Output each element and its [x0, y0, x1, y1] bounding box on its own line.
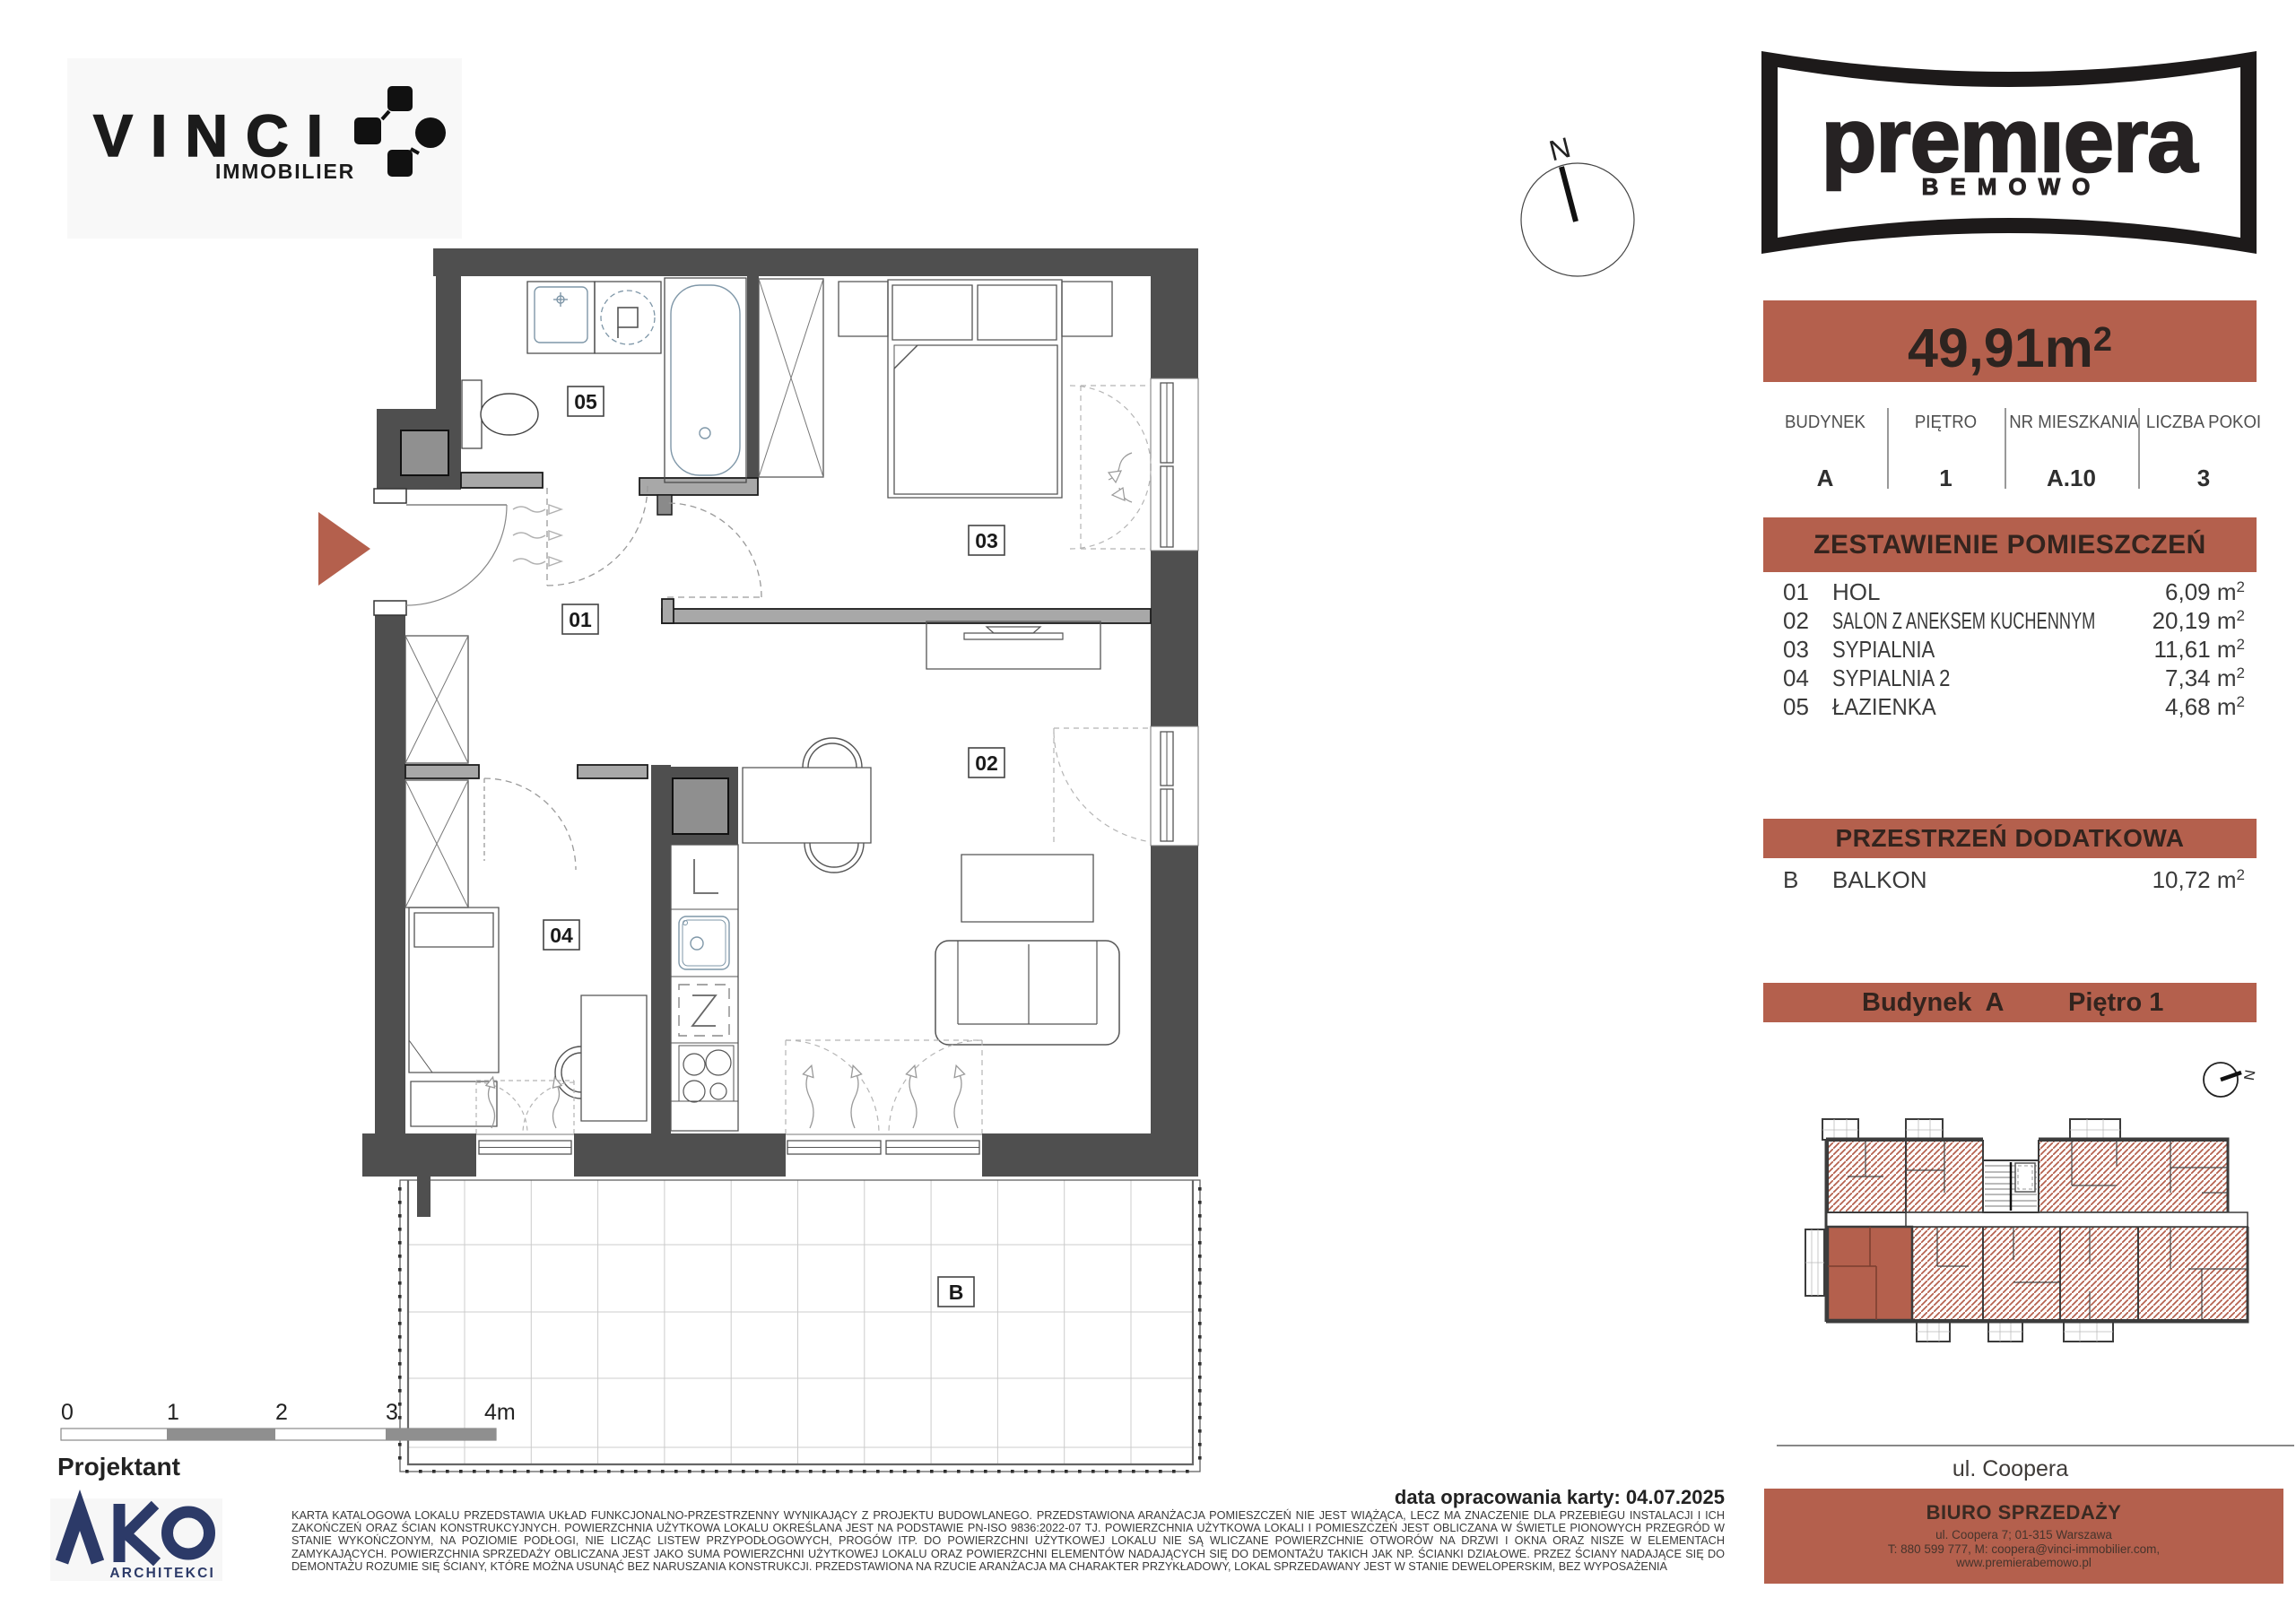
svg-text:1: 1 [167, 1400, 179, 1425]
svg-text:N: N [2240, 1068, 2257, 1081]
svg-text:01: 01 [569, 608, 592, 631]
svg-text:04: 04 [550, 924, 573, 947]
svg-text:N: N [1546, 131, 1574, 168]
svg-text:0: 0 [61, 1400, 74, 1425]
svg-text:03: 03 [975, 529, 998, 552]
svg-text:05: 05 [574, 390, 597, 413]
svg-text:ARCHITEKCI: ARCHITEKCI [109, 1566, 215, 1581]
svg-text:2: 2 [275, 1400, 288, 1425]
svg-text:IMMOBILIER: IMMOBILIER [215, 160, 355, 183]
svg-text:VINCI: VINCI [93, 102, 341, 169]
svg-text:B: B [949, 1281, 964, 1304]
svg-text:4m: 4m [484, 1400, 516, 1425]
svg-text:BEMOWO: BEMOWO [1922, 173, 2102, 200]
svg-text:3: 3 [386, 1400, 398, 1425]
svg-text:02: 02 [975, 751, 998, 775]
